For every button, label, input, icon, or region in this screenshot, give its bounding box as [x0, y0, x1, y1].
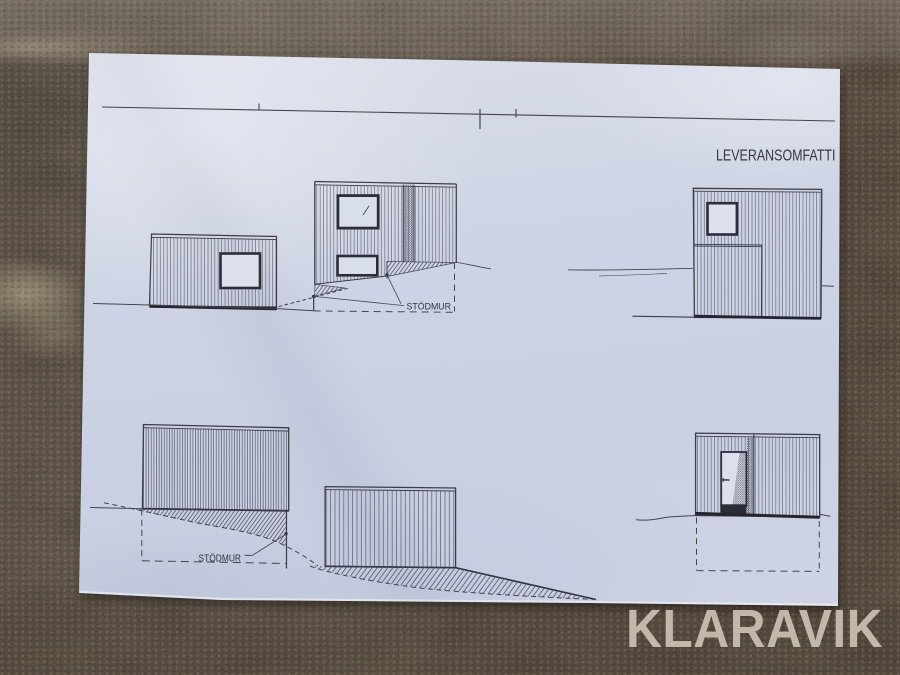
- svg-text:LEVERANSOMFATTI: LEVERANSOMFATTI: [716, 148, 836, 165]
- svg-text:STÖDMUR: STÖDMUR: [407, 301, 452, 312]
- svg-text:STÖDMUR: STÖDMUR: [199, 553, 242, 565]
